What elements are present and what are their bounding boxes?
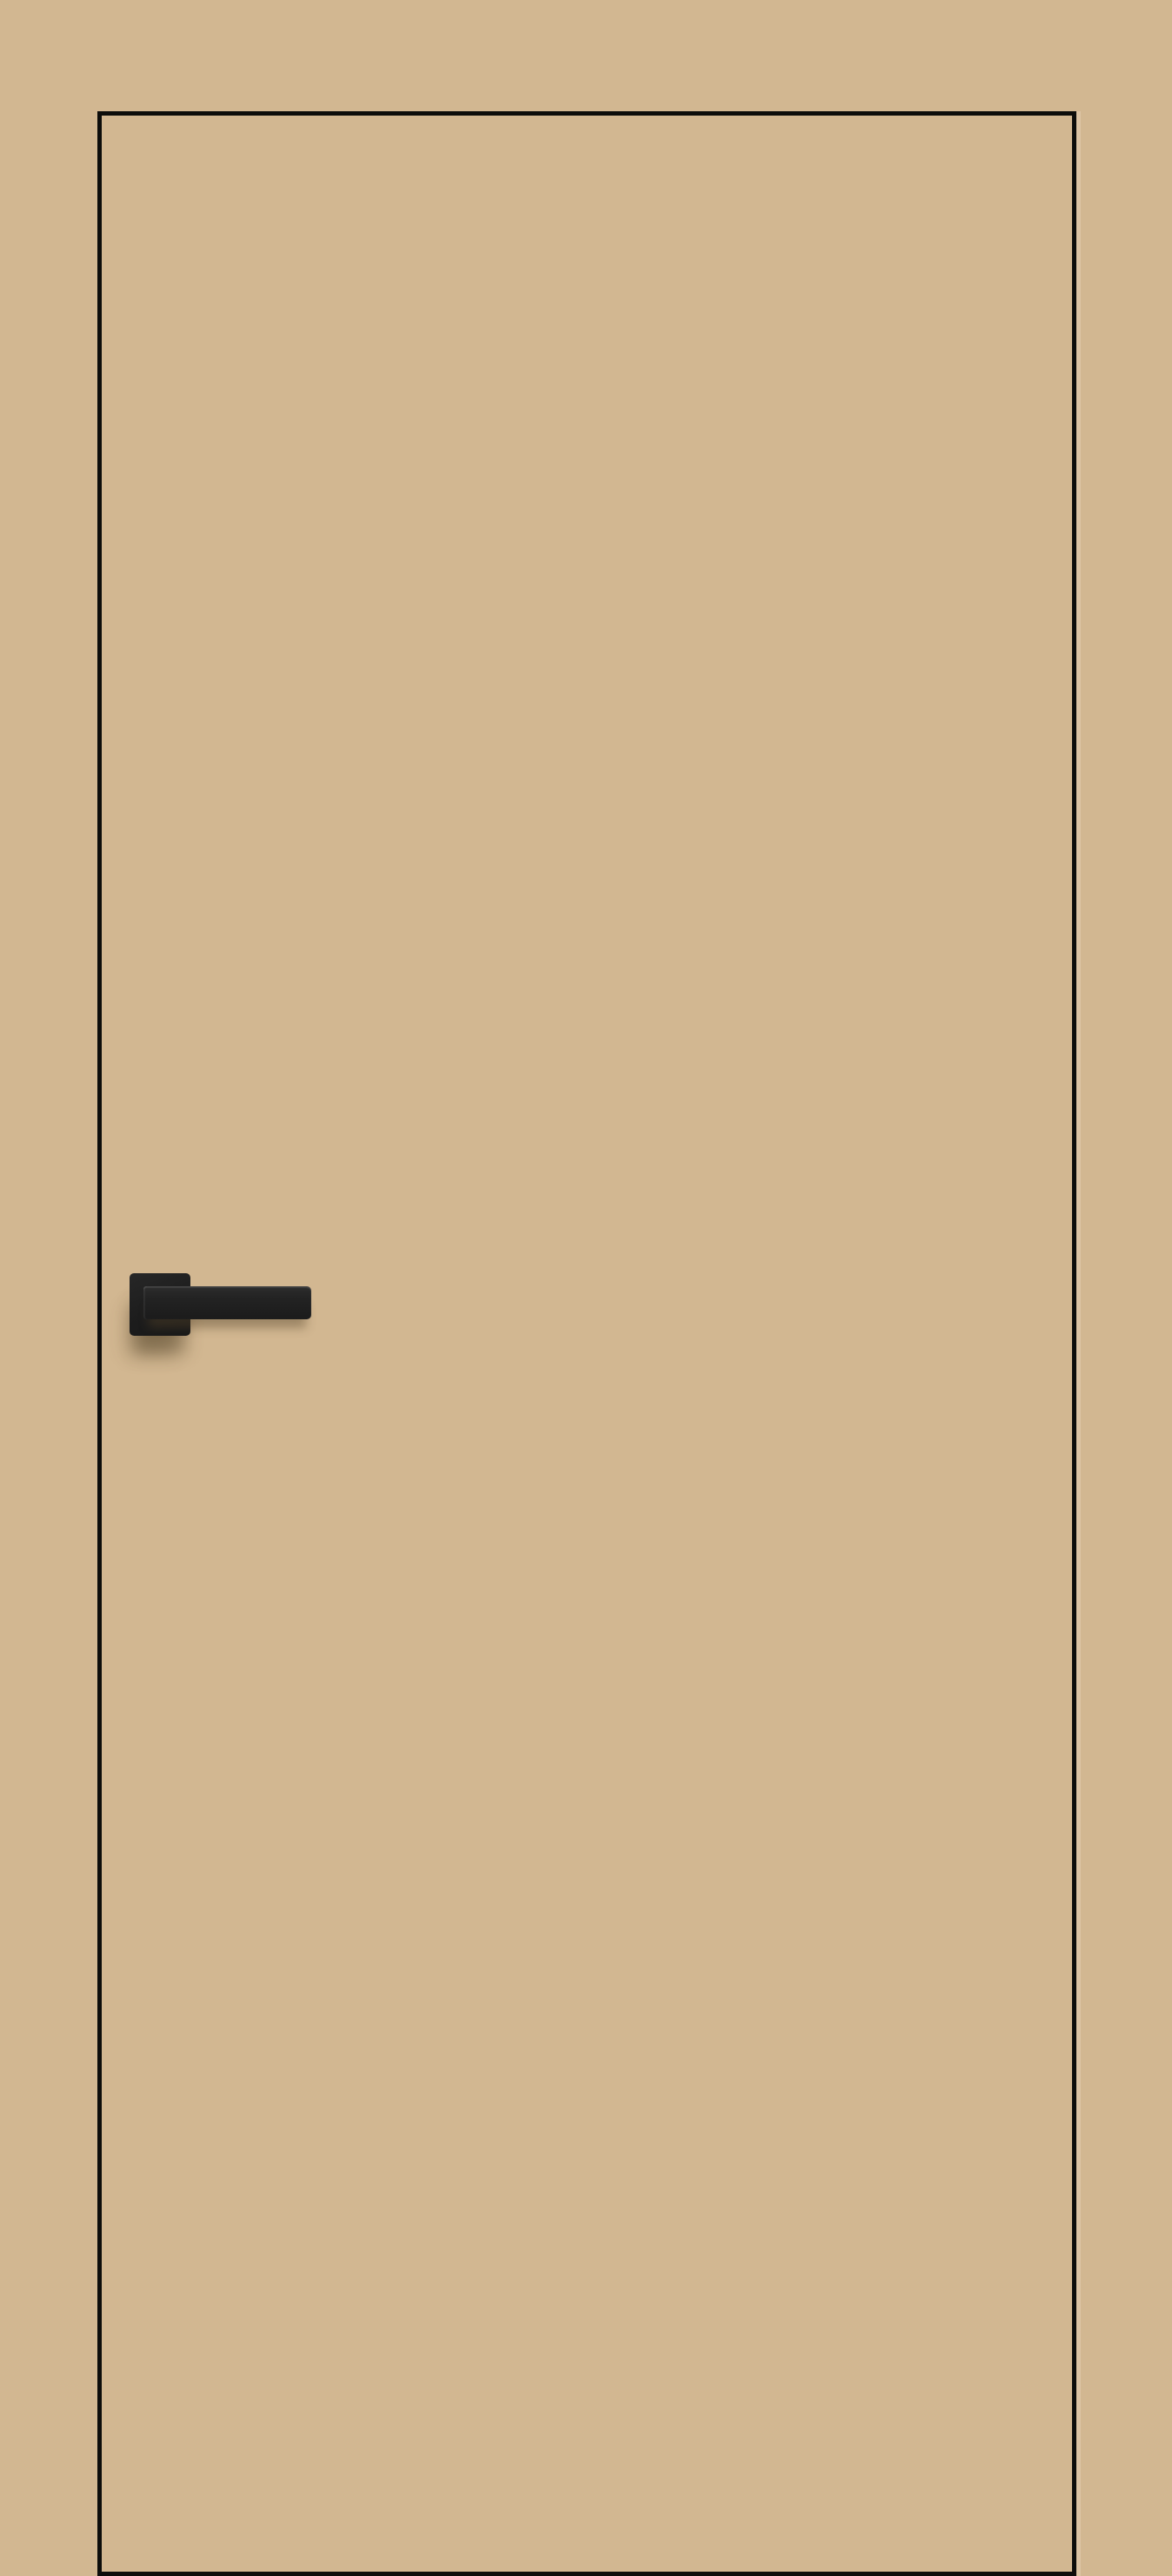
handle-lever xyxy=(143,1286,311,1319)
door-handle xyxy=(102,116,1072,2572)
wall-background xyxy=(0,0,1172,2576)
door-edge-highlight xyxy=(1076,111,1081,2576)
handle-rosette xyxy=(130,1273,190,1336)
door-leaf xyxy=(97,111,1076,2576)
